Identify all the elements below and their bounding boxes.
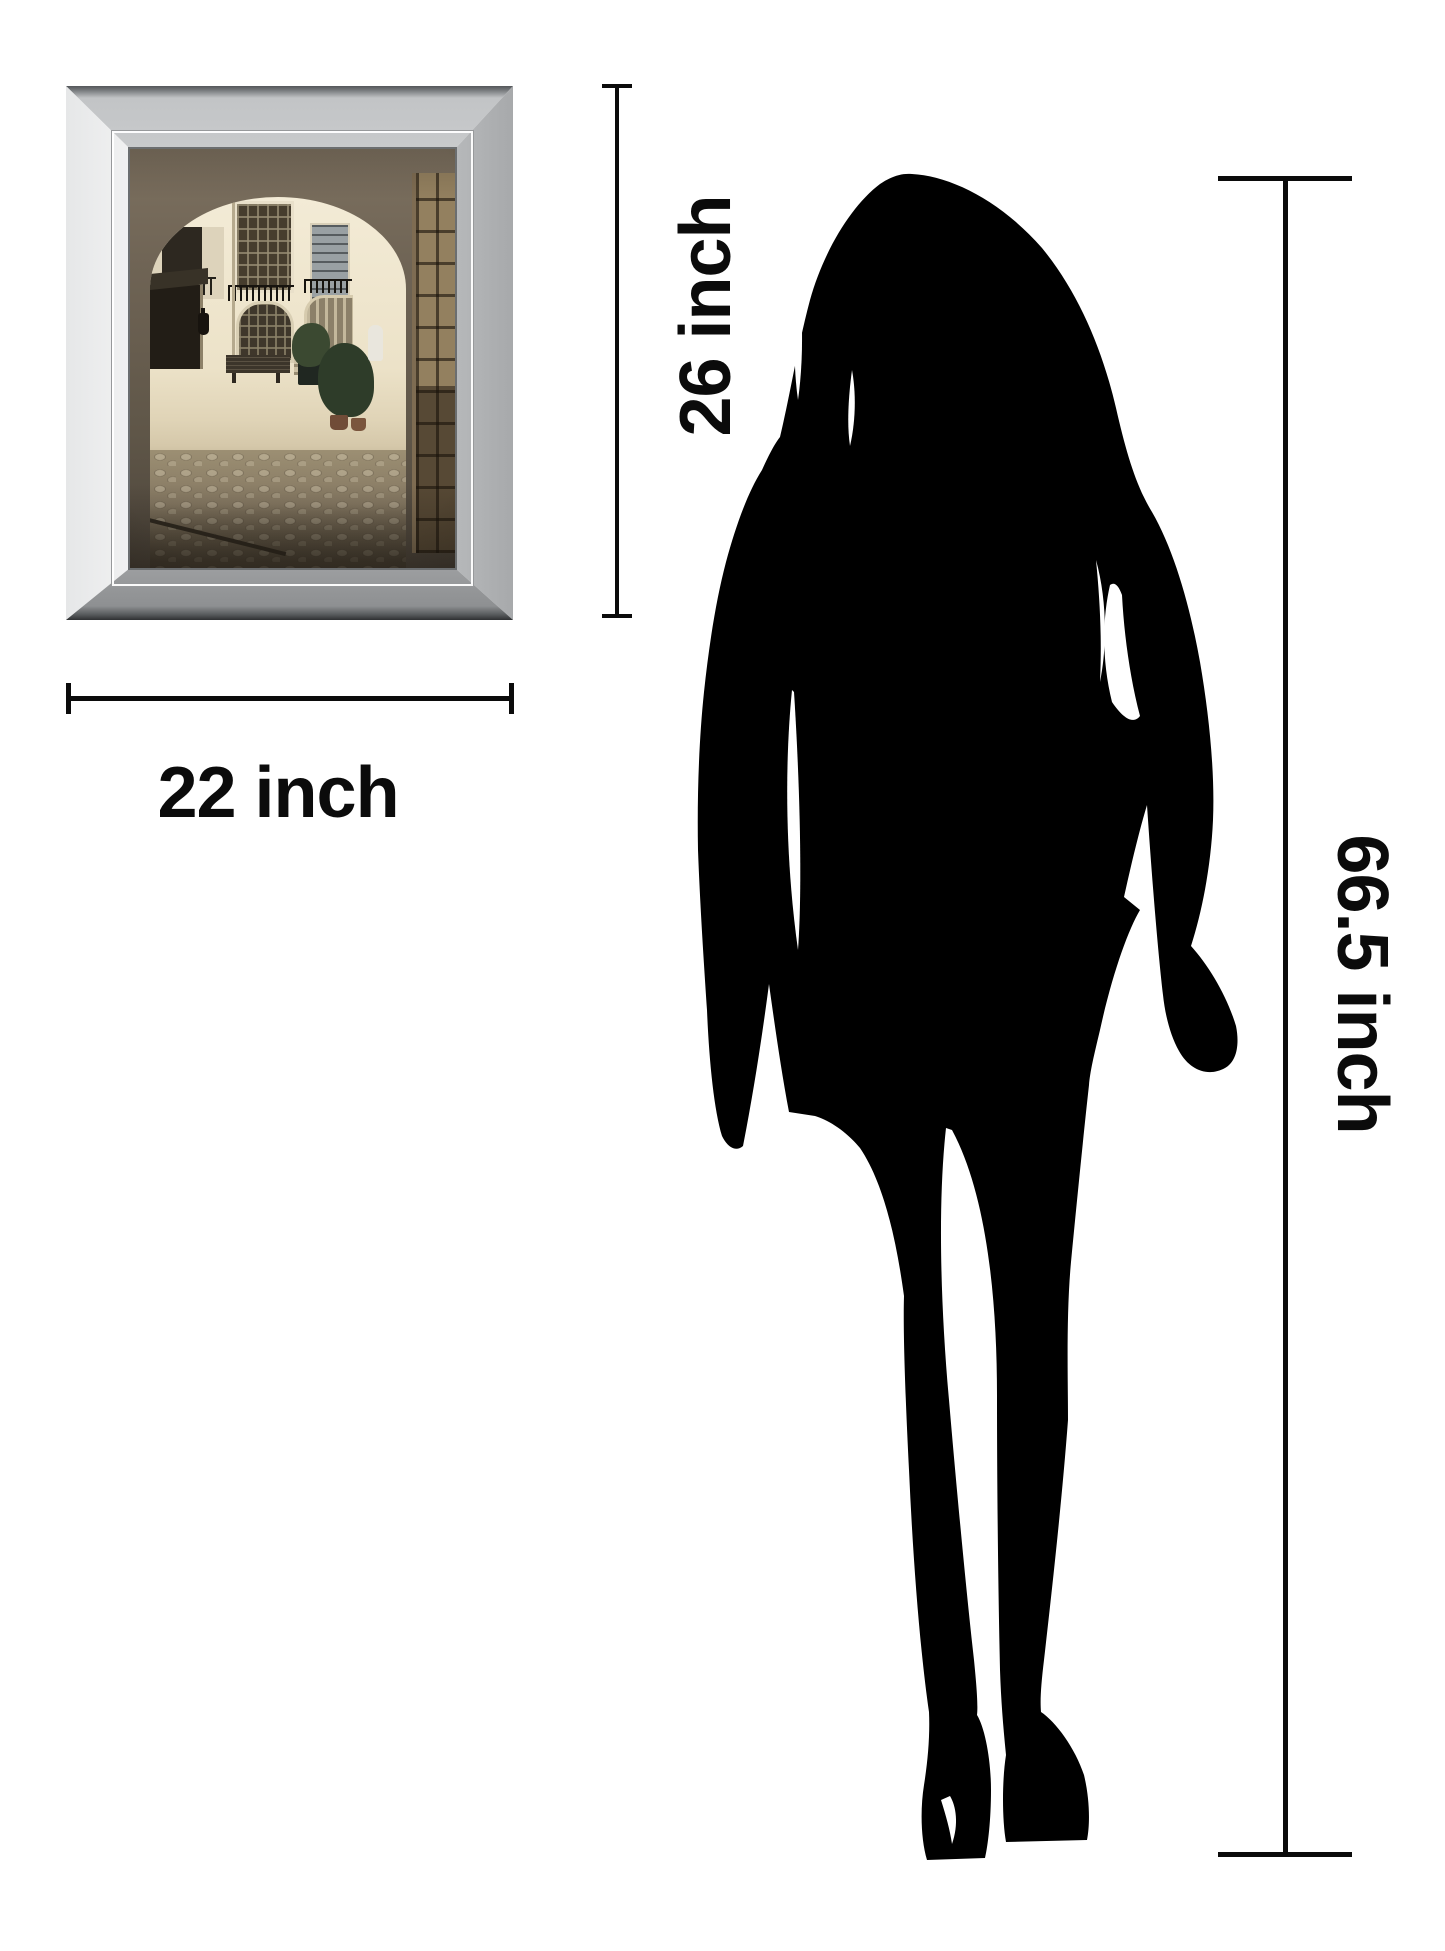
- artwork-photo: [130, 149, 455, 568]
- person-height-label: 66.5 inch: [1326, 834, 1398, 1133]
- frame-width-label: 22 inch: [157, 757, 398, 829]
- framed-artwork: [66, 86, 513, 620]
- size-comparison-diagram: 26 inch 22 inch 66.5 inch: [0, 0, 1445, 1951]
- frame-width-dimension-line: [66, 696, 514, 701]
- dimension-cap: [66, 683, 71, 714]
- dimension-cap: [509, 683, 514, 714]
- dimension-cap: [602, 614, 632, 618]
- photo-vignette: [130, 149, 455, 568]
- frame-height-dimension-line: [615, 85, 619, 618]
- woman-silhouette: [690, 165, 1250, 1870]
- person-height-dimension-line: [1283, 176, 1288, 1857]
- dimension-cap: [602, 84, 632, 88]
